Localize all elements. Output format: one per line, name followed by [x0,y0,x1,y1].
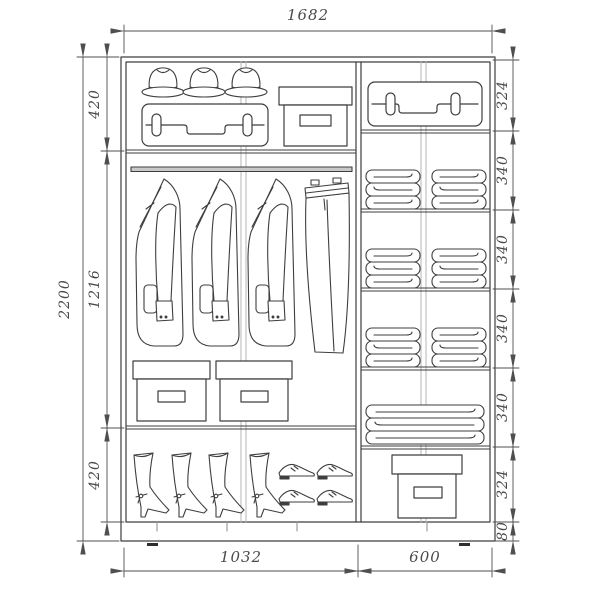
dim-label-bottom-left: 1032 [220,548,262,566]
jacket-icon [136,179,183,346]
dim-label-total-width: 1682 [287,6,329,24]
folded-clothes-icon [432,328,486,367]
folded-clothes-icon [432,249,486,288]
jacket-icon [248,179,295,346]
suitcase-icon [142,104,268,146]
dim-label-right-5: 340 [495,392,511,422]
dim-label-right-3: 340 [495,234,511,264]
storage-box-icon [279,87,352,146]
plinth-feet [157,522,427,531]
pants-icon [305,178,349,353]
jacket-icon [192,179,239,346]
shoe-icon [317,464,352,479]
boot-icon [172,453,207,517]
leveling-feet [147,543,470,546]
dim-label-right-4: 340 [495,313,511,343]
storage-box-icon [133,361,210,421]
storage-box-icon [216,361,292,421]
dim-label-right-6: 324 [495,469,511,499]
boot-icon [250,453,285,517]
dim-label-left-middle: 1216 [87,269,103,309]
folded-clothes-icon [366,170,420,209]
hat-icon [225,68,267,97]
shoe-icon [279,490,314,505]
boot-icon [209,453,244,517]
storage-box-icon [392,455,462,518]
suitcase-icon [368,82,482,126]
blanket-icon [366,405,484,444]
dim-label-total-height: 2200 [57,279,73,319]
folded-clothes-icon [366,328,420,367]
dim-label-right-2: 340 [495,155,511,185]
hat-icon [183,68,225,97]
dim-label-right-1: 324 [495,80,511,110]
dim-label-right-plinth: 80 [495,521,511,541]
wardrobe-drawing: 1682 2200 420 1216 420 324 340 340 340 3… [0,0,600,600]
hat-icon [142,68,184,97]
hanging-rod [131,167,352,172]
folded-clothes-icon [366,249,420,288]
boot-icon [134,453,169,517]
shoe-icon [317,490,352,505]
dim-label-left-top: 420 [87,89,103,119]
dim-label-left-bottom: 420 [87,460,103,490]
folded-clothes-icon [432,170,486,209]
dim-label-bottom-right: 600 [409,548,441,566]
shoe-icon [279,464,314,479]
